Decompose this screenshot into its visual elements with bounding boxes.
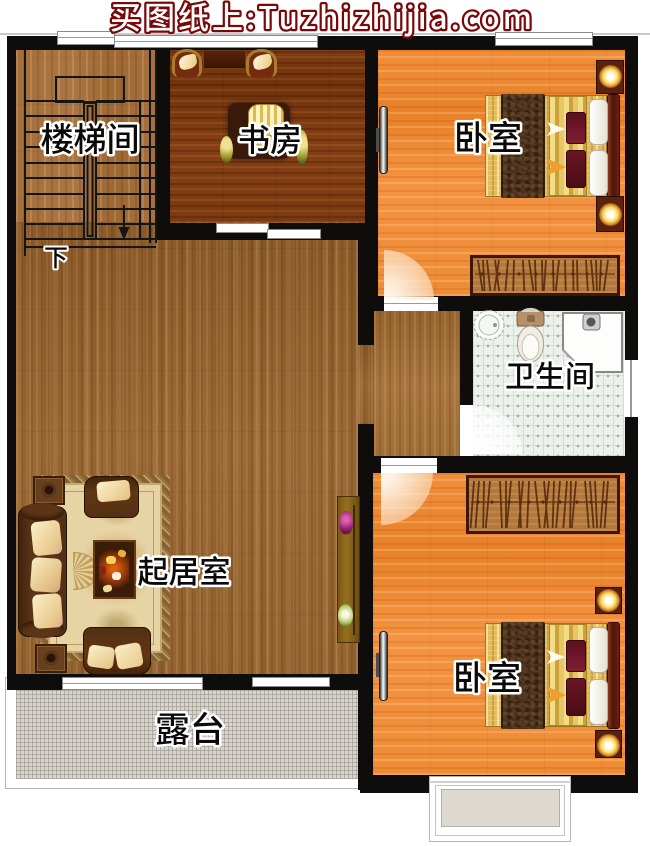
svg-text:下: 下 <box>44 238 68 273</box>
svg-text:书房: 书房 <box>238 115 302 161</box>
svg-text:露台: 露台 <box>155 702 225 753</box>
svg-text:卧室: 卧室 <box>454 111 522 160</box>
svg-text:起居室: 起居室 <box>138 547 231 592</box>
svg-text:卧室: 卧室 <box>453 651 521 700</box>
svg-text:买图纸上:Tuzhizhijia.com: 买图纸上:Tuzhizhijia.com <box>110 0 532 38</box>
svg-text:卫生间: 卫生间 <box>505 352 595 396</box>
svg-text:楼梯间: 楼梯间 <box>41 113 140 161</box>
